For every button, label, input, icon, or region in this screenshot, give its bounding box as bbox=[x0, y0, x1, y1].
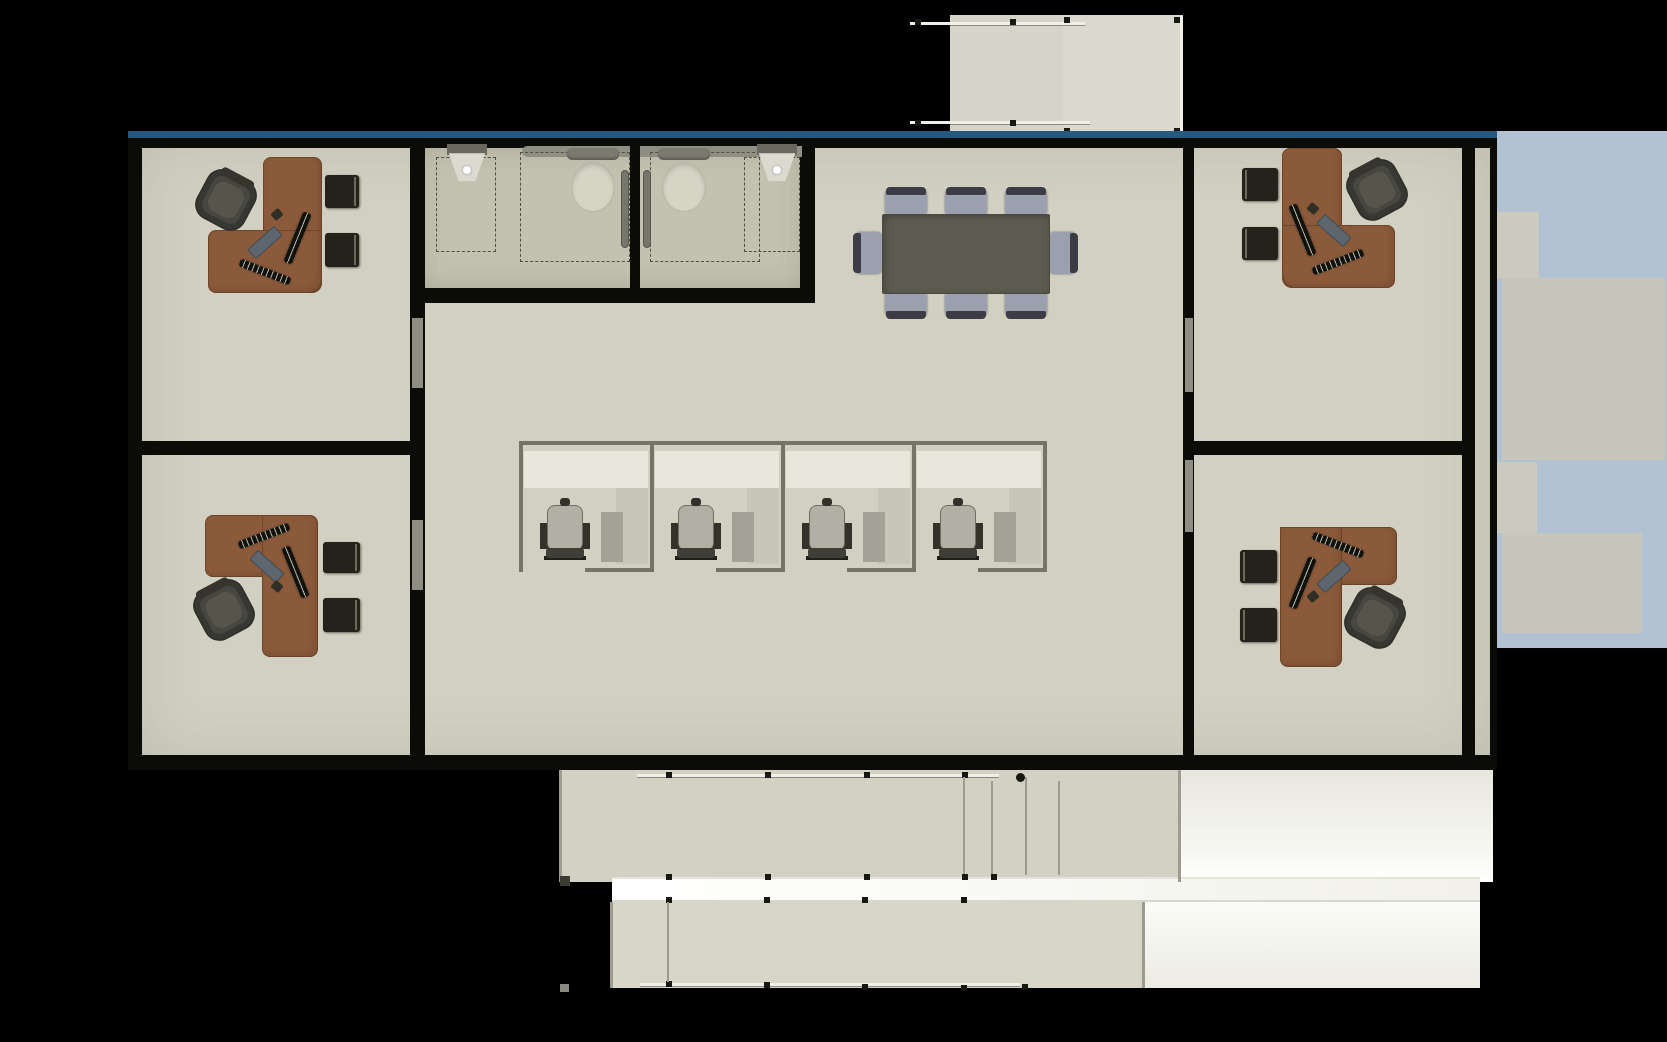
toilet bbox=[572, 163, 614, 211]
cubicle-pedestal bbox=[994, 512, 1016, 562]
rail-post bbox=[991, 874, 997, 880]
rail-post bbox=[1174, 17, 1180, 23]
entry-ramp bbox=[950, 15, 1063, 131]
sink bbox=[757, 144, 797, 184]
restroom-door-leaf bbox=[621, 170, 629, 248]
deck-edge bbox=[1142, 902, 1145, 988]
entry-rail-right bbox=[1180, 16, 1183, 134]
rail-post bbox=[961, 897, 967, 903]
door-gap bbox=[1185, 318, 1193, 392]
cubicle-pedestal bbox=[863, 512, 885, 562]
rail-post bbox=[864, 772, 870, 778]
rail-post bbox=[666, 874, 672, 880]
cubicle-wall bbox=[650, 441, 654, 572]
door-gap bbox=[1185, 460, 1193, 532]
rail-post bbox=[764, 897, 770, 903]
guest-chair bbox=[323, 542, 360, 573]
rail-post bbox=[1010, 120, 1016, 126]
side-step-upper bbox=[1495, 212, 1539, 278]
guest-chair bbox=[1240, 608, 1277, 642]
south-deck-lower bbox=[612, 902, 1144, 988]
task-chair bbox=[547, 505, 583, 551]
cubicle-wall bbox=[519, 441, 523, 572]
cubicle-wall bbox=[781, 441, 785, 572]
south-pad-lower-right bbox=[1144, 902, 1480, 988]
guest-chair bbox=[1242, 227, 1278, 260]
cubicle-worksurface bbox=[917, 451, 1041, 488]
cubicle-worksurface bbox=[655, 451, 779, 488]
wall-right-outer bbox=[1490, 138, 1497, 770]
rail-post bbox=[864, 874, 870, 880]
rail-post bbox=[666, 772, 672, 778]
stair-stringer bbox=[1058, 781, 1060, 875]
task-chair bbox=[678, 505, 714, 551]
stair-stringer bbox=[991, 781, 993, 875]
guest-chair bbox=[325, 175, 359, 208]
rail-post bbox=[915, 120, 921, 126]
rail-post bbox=[1010, 19, 1016, 25]
door-gap bbox=[412, 318, 423, 388]
rail-post bbox=[915, 19, 921, 25]
conference-chair bbox=[885, 290, 927, 317]
south-walkway-band bbox=[612, 877, 1480, 902]
guest-chair bbox=[325, 233, 359, 267]
side-terrace-upper bbox=[1502, 278, 1665, 460]
cubicle-worksurface bbox=[524, 451, 648, 488]
rail-post bbox=[1064, 17, 1070, 23]
conference-chair bbox=[945, 290, 987, 317]
cubicle-wall bbox=[912, 441, 916, 572]
wall-right-divider bbox=[1183, 441, 1475, 455]
office-floor-plan-render bbox=[0, 0, 1667, 1042]
conference-chair bbox=[1049, 232, 1076, 274]
task-chair bbox=[940, 505, 976, 551]
entry-rail-bottom bbox=[910, 121, 1090, 124]
south-deck-upper bbox=[560, 770, 1180, 882]
side-step-lower bbox=[1495, 462, 1537, 533]
deck-edge bbox=[559, 770, 562, 882]
side-terrace-lower bbox=[1502, 533, 1642, 633]
south-pad-right bbox=[1180, 770, 1493, 882]
restroom-door-leaf bbox=[643, 170, 651, 248]
cubicle-wall bbox=[1043, 441, 1047, 572]
rail-post bbox=[1022, 984, 1028, 990]
stair-stringer bbox=[1025, 777, 1027, 875]
task-chair bbox=[809, 505, 845, 551]
rail-post bbox=[961, 985, 967, 991]
conference-chair bbox=[885, 189, 927, 216]
sink-drain-dot bbox=[463, 166, 471, 174]
wall-restroom-right bbox=[800, 138, 815, 303]
cubicle-wall-bottom bbox=[978, 568, 1043, 572]
wall-restroom-divider bbox=[630, 143, 640, 291]
cubicle-worksurface bbox=[786, 451, 910, 488]
cubicle-pedestal bbox=[732, 512, 754, 562]
rail-knob bbox=[1016, 773, 1025, 782]
cubicle-wall-bottom bbox=[847, 568, 912, 572]
toilet bbox=[663, 163, 705, 211]
rail-post bbox=[765, 772, 771, 778]
cubicle-pedestal bbox=[601, 512, 623, 562]
sink-drain-dot bbox=[773, 166, 781, 174]
rail-post bbox=[962, 874, 968, 880]
stair-stringer bbox=[963, 777, 965, 875]
guest-chair bbox=[323, 598, 360, 632]
rail-post bbox=[862, 984, 868, 990]
building-top-accent bbox=[128, 131, 1497, 138]
entry-landing bbox=[1063, 15, 1183, 135]
deck-corner-block bbox=[560, 984, 569, 992]
guest-chair bbox=[1242, 168, 1278, 201]
conference-chair bbox=[855, 232, 882, 274]
clearance-dashed bbox=[520, 152, 630, 262]
deck-rail-upper bbox=[637, 774, 999, 777]
wall-left-divider bbox=[128, 441, 425, 455]
conference-table bbox=[882, 214, 1050, 294]
entry-rail-top bbox=[910, 22, 1085, 25]
conference-chair bbox=[1005, 189, 1047, 216]
door-gap bbox=[412, 520, 423, 590]
sink bbox=[447, 144, 487, 184]
cubicle-wall-bottom bbox=[716, 568, 781, 572]
deck-edge bbox=[1178, 770, 1181, 882]
wall-exterior-bottom bbox=[128, 755, 1497, 770]
deck-corner-block bbox=[560, 876, 570, 886]
deck-edge bbox=[610, 902, 613, 988]
conference-chair bbox=[1005, 290, 1047, 317]
wall-restroom-bottom bbox=[410, 288, 815, 303]
room-side-corridor bbox=[1475, 145, 1490, 755]
cubicle-wall-bottom bbox=[585, 568, 650, 572]
rail-post bbox=[765, 874, 771, 880]
rail-post bbox=[862, 897, 868, 903]
stair-stringer bbox=[667, 902, 669, 982]
guest-chair bbox=[1240, 550, 1277, 583]
rail-post bbox=[764, 982, 770, 988]
conference-chair bbox=[945, 189, 987, 216]
